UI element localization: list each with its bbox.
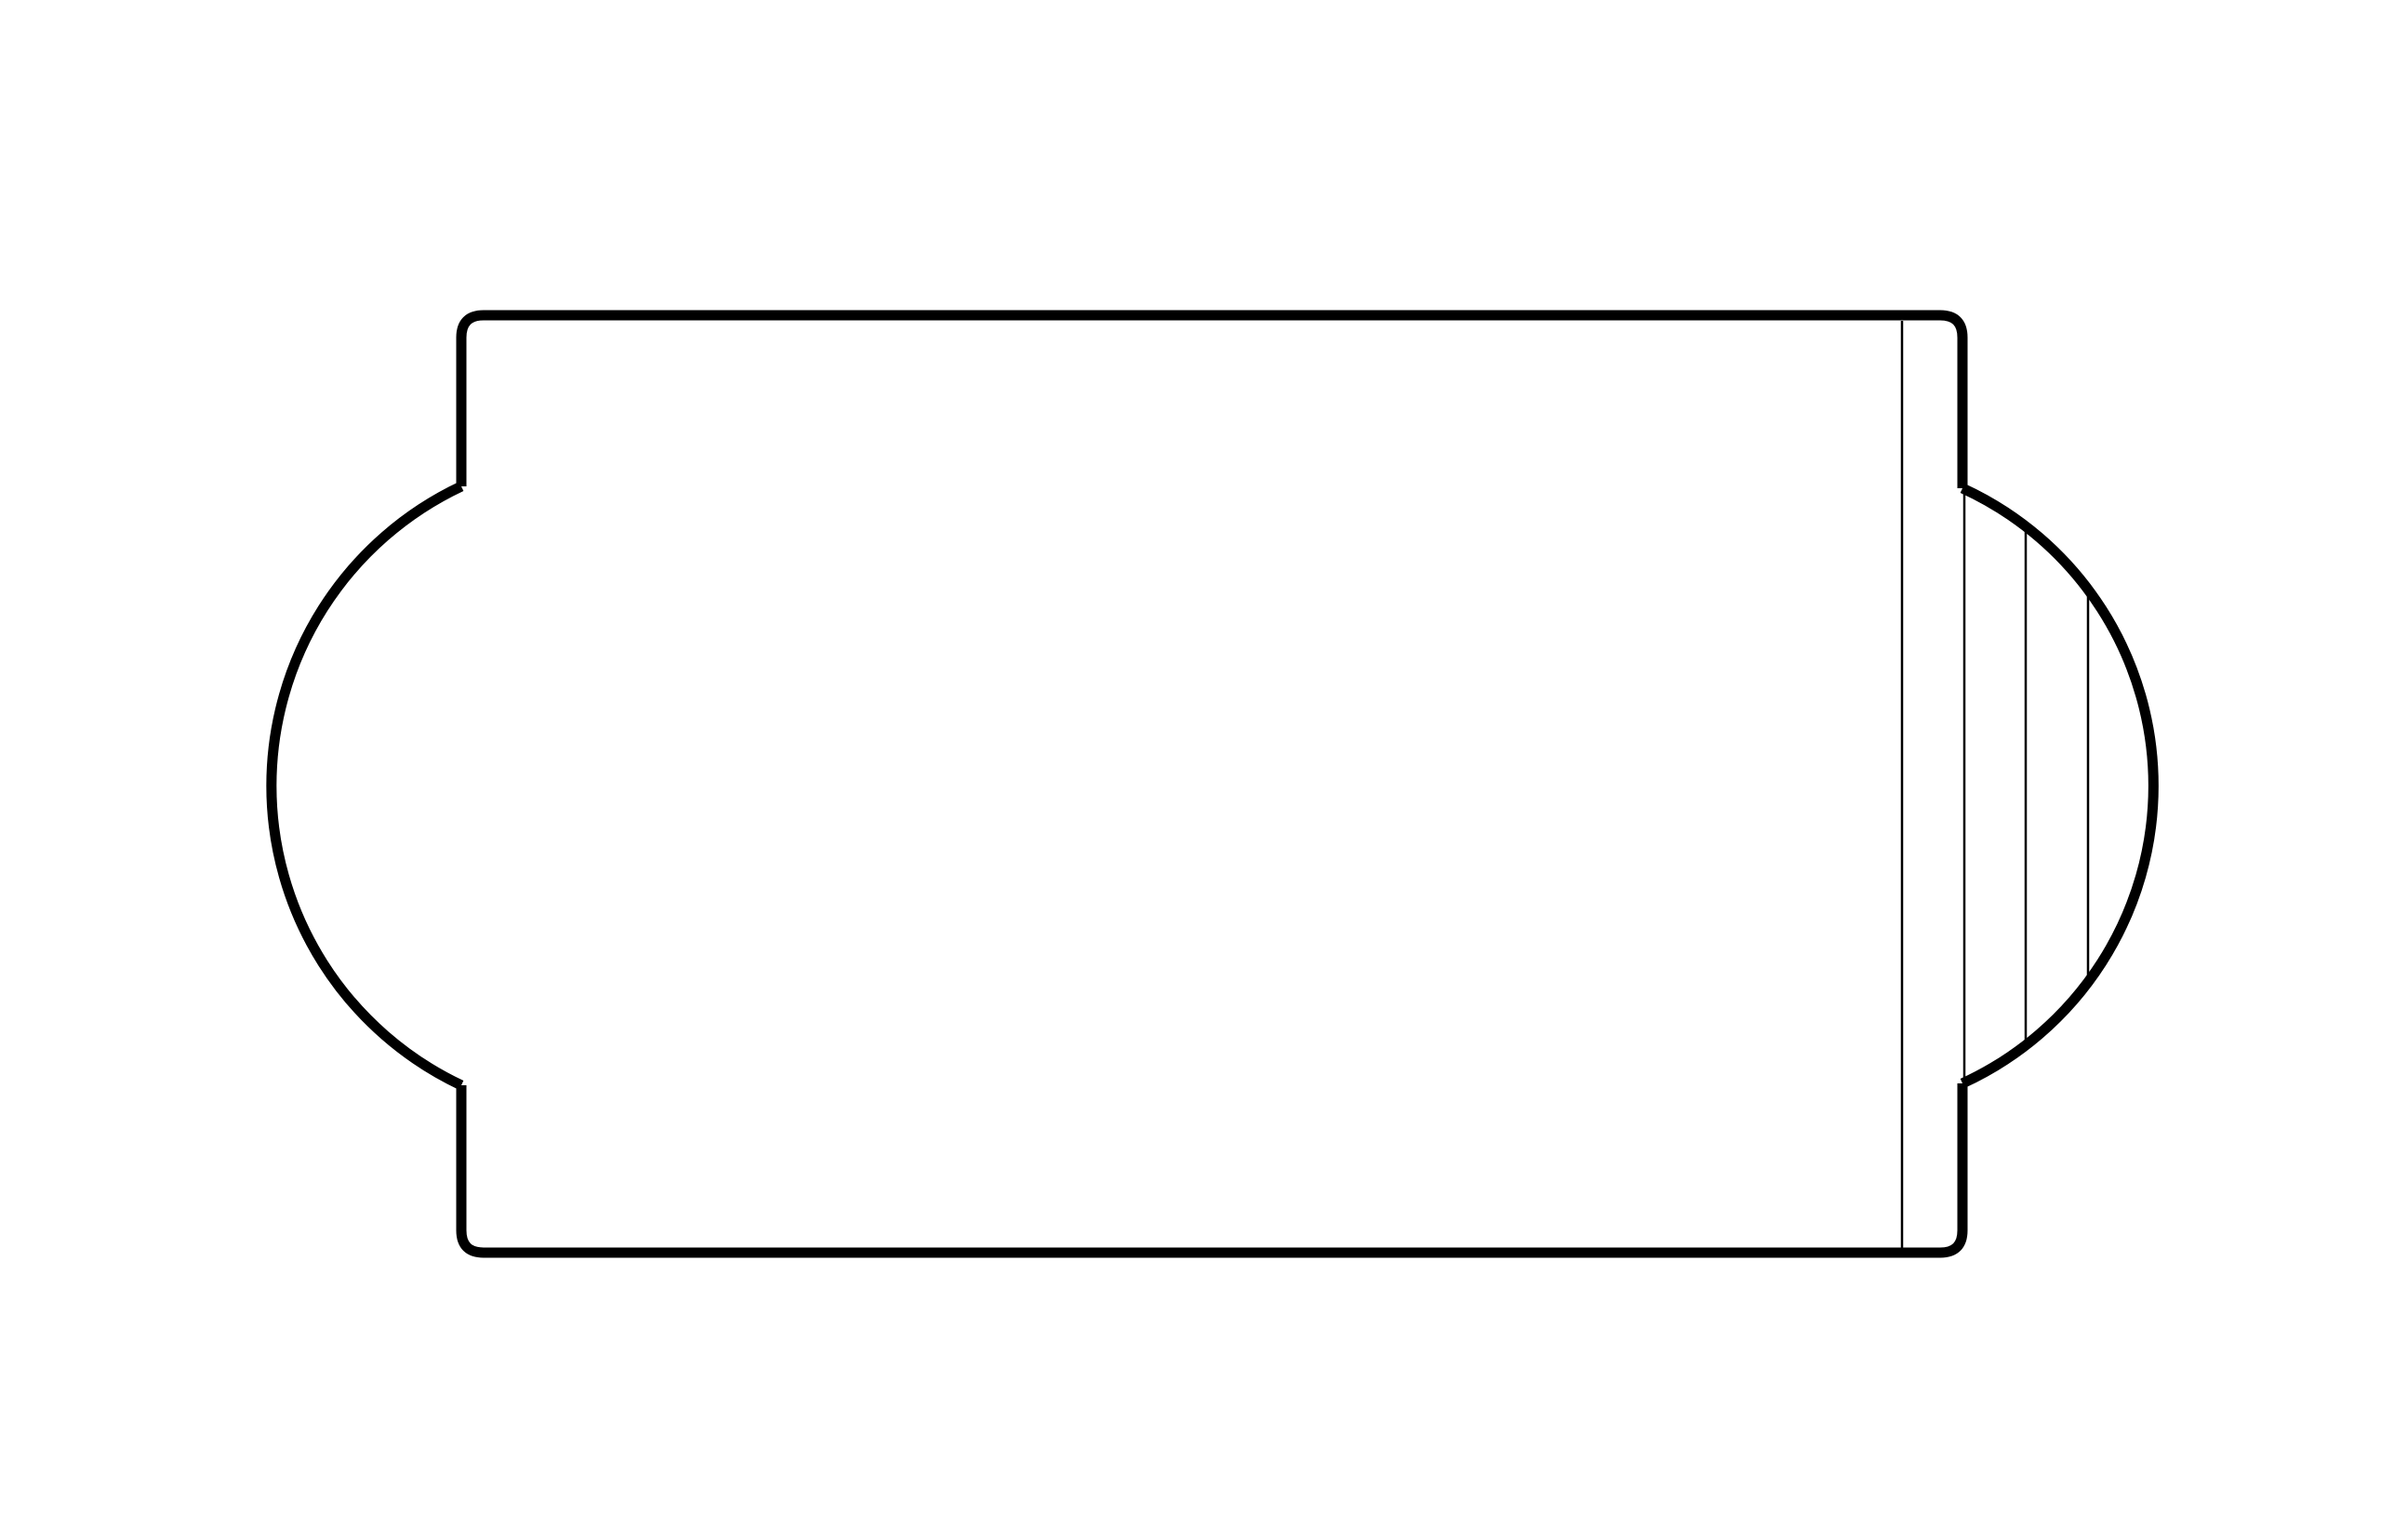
- left-bulge-arc: [272, 486, 461, 1085]
- body-outline-upper: [461, 315, 1962, 488]
- body-outline-lower: [461, 1083, 1962, 1253]
- drawing-page: [0, 0, 2381, 1540]
- technical-drawing-canvas: [0, 0, 2381, 1540]
- right-bulge-arc: [1962, 488, 2153, 1083]
